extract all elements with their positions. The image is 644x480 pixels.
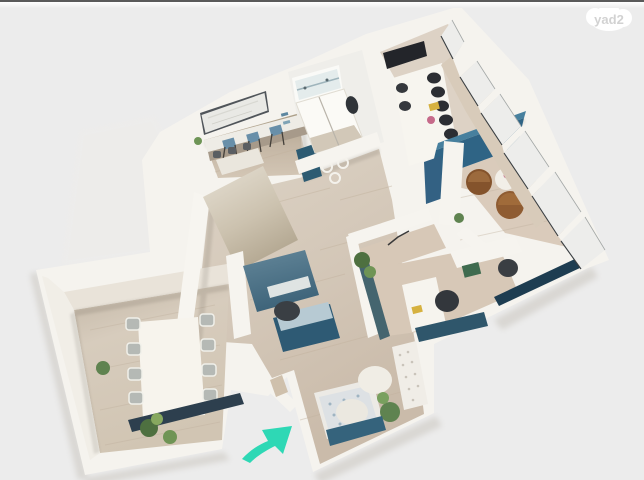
svg-text:yad2: yad2 xyxy=(594,12,624,27)
